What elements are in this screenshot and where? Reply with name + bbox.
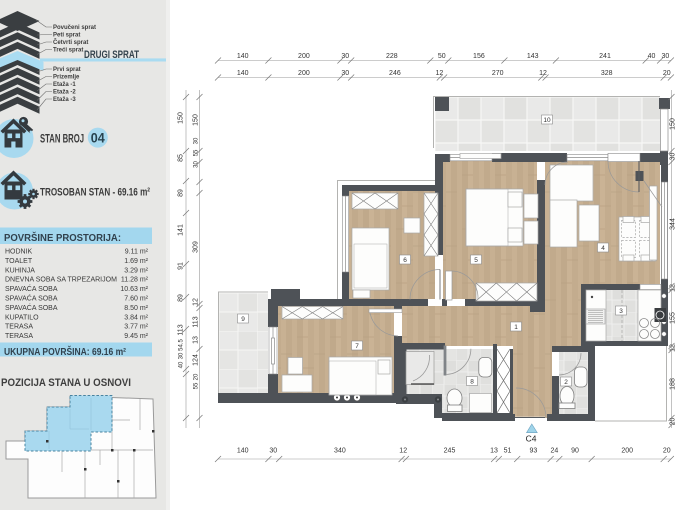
svg-text:55: 55 — [194, 382, 200, 389]
svg-text:3.29 m²: 3.29 m² — [124, 267, 148, 274]
svg-text:140: 140 — [237, 448, 249, 455]
svg-text:10: 10 — [543, 117, 551, 124]
svg-text:Etaža -3: Etaža -3 — [53, 97, 76, 103]
svg-text:89: 89 — [178, 189, 185, 197]
svg-text:270: 270 — [492, 70, 504, 77]
svg-text:DNEVNA SOBA SA TRPEZARIJOM: DNEVNA SOBA SA TRPEZARIJOM — [5, 277, 117, 284]
svg-text:POZICIJA STANA U OSNOVI: POZICIJA STANA U OSNOVI — [1, 377, 131, 389]
svg-text:113: 113 — [193, 316, 200, 327]
svg-text:340: 340 — [334, 448, 346, 455]
svg-text:200: 200 — [621, 448, 633, 455]
svg-text:HODNIK: HODNIK — [5, 249, 33, 256]
svg-text:50: 50 — [438, 53, 446, 60]
svg-text:1: 1 — [514, 324, 518, 331]
svg-text:140: 140 — [237, 53, 249, 60]
svg-text:5: 5 — [474, 257, 478, 264]
svg-text:150: 150 — [178, 112, 185, 124]
svg-text:TERASA: TERASA — [5, 324, 33, 331]
svg-text:12: 12 — [399, 448, 407, 455]
svg-text:3: 3 — [619, 308, 623, 315]
svg-text:155: 155 — [670, 312, 677, 324]
svg-text:Etaža -1: Etaža -1 — [53, 82, 76, 88]
svg-text:93: 93 — [530, 448, 538, 455]
svg-text:KUHINJA: KUHINJA — [5, 267, 35, 274]
svg-text:150: 150 — [670, 118, 677, 130]
svg-text:TROSOBAN STAN - 69.16 m²: TROSOBAN STAN - 69.16 m² — [40, 187, 150, 199]
svg-text:11.28 m²: 11.28 m² — [121, 277, 149, 284]
svg-text:85: 85 — [178, 154, 185, 162]
svg-text:13: 13 — [490, 448, 498, 455]
svg-text:20: 20 — [663, 70, 671, 77]
svg-text:246: 246 — [389, 70, 401, 77]
svg-text:228: 228 — [386, 53, 398, 60]
svg-text:3.77 m²: 3.77 m² — [124, 324, 148, 331]
svg-text:200: 200 — [298, 70, 310, 77]
svg-text:7.60 m²: 7.60 m² — [124, 296, 148, 303]
svg-text:51: 51 — [504, 448, 512, 455]
svg-text:124: 124 — [193, 354, 200, 366]
svg-text:241: 241 — [599, 53, 611, 60]
svg-text:143: 143 — [527, 53, 539, 60]
svg-text:6: 6 — [403, 257, 407, 264]
svg-text:91: 91 — [178, 262, 185, 270]
svg-text:9: 9 — [241, 316, 245, 323]
svg-text:8.50 m²: 8.50 m² — [124, 305, 148, 312]
svg-text:30: 30 — [341, 70, 349, 77]
svg-text:20: 20 — [663, 448, 671, 455]
svg-text:4: 4 — [601, 245, 605, 252]
svg-text:3.84 m²: 3.84 m² — [124, 314, 148, 321]
svg-text:04: 04 — [91, 131, 105, 146]
svg-text:SPAVAĆA SOBA: SPAVAĆA SOBA — [5, 294, 58, 303]
svg-text:90: 90 — [571, 448, 579, 455]
svg-text:24: 24 — [551, 448, 559, 455]
svg-text:9.11 m²: 9.11 m² — [125, 249, 149, 256]
svg-text:40: 40 — [648, 53, 656, 60]
svg-text:30: 30 — [179, 352, 185, 359]
svg-text:30: 30 — [194, 137, 200, 144]
svg-text:30: 30 — [194, 161, 200, 168]
svg-text:POVRŠINE PROSTORIJA:: POVRŠINE PROSTORIJA: — [4, 231, 121, 244]
svg-text:SPAVAĆA SOBA: SPAVAĆA SOBA — [5, 284, 58, 293]
svg-text:7: 7 — [355, 343, 359, 350]
svg-text:141: 141 — [178, 224, 185, 236]
svg-text:20: 20 — [194, 373, 200, 380]
svg-text:200: 200 — [298, 53, 310, 60]
svg-text:344: 344 — [670, 218, 677, 230]
svg-text:SPAVAĆA SOBA: SPAVAĆA SOBA — [5, 303, 58, 312]
svg-text:KUPATILO: KUPATILO — [5, 314, 39, 321]
svg-text:Peti sprat: Peti sprat — [53, 33, 80, 39]
svg-text:2: 2 — [564, 379, 568, 386]
svg-text:9.45 m²: 9.45 m² — [124, 333, 148, 340]
svg-text:Povučeni sprat: Povučeni sprat — [53, 25, 96, 31]
svg-text:UKUPNA POVRŠINA: 69.16 m²: UKUPNA POVRŠINA: 69.16 m² — [4, 345, 126, 358]
svg-text:30: 30 — [341, 53, 349, 60]
svg-text:140: 140 — [237, 70, 249, 77]
svg-text:10.63 m²: 10.63 m² — [120, 286, 148, 293]
svg-text:12: 12 — [436, 70, 444, 77]
svg-text:Treći sprat: Treći sprat — [53, 48, 83, 54]
svg-text:12: 12 — [539, 70, 547, 77]
svg-text:DRUGI SPRAT: DRUGI SPRAT — [84, 49, 139, 61]
svg-text:Četvrti sprat: Četvrti sprat — [53, 39, 88, 46]
svg-text:TERASA: TERASA — [5, 333, 33, 340]
svg-text:8: 8 — [470, 379, 474, 386]
svg-text:55: 55 — [194, 149, 200, 156]
svg-text:30: 30 — [269, 448, 277, 455]
svg-text:328: 328 — [601, 70, 613, 77]
svg-text:TOALET: TOALET — [5, 258, 33, 265]
svg-text:188: 188 — [670, 378, 677, 390]
svg-text:40: 40 — [179, 361, 185, 368]
svg-text:54.5: 54.5 — [179, 339, 185, 351]
svg-text:89: 89 — [178, 294, 185, 302]
svg-text:Prizemlje: Prizemlje — [53, 75, 80, 81]
svg-text:C4: C4 — [526, 434, 537, 444]
svg-text:Prvi sprat: Prvi sprat — [53, 67, 81, 73]
svg-text:Etaža -2: Etaža -2 — [53, 90, 76, 96]
svg-text:113: 113 — [178, 324, 185, 335]
svg-text:1.69 m²: 1.69 m² — [124, 258, 148, 265]
svg-text:309: 309 — [193, 241, 200, 253]
svg-text:30: 30 — [670, 153, 677, 161]
svg-text:156: 156 — [473, 53, 485, 60]
svg-text:150: 150 — [193, 114, 200, 126]
svg-text:13: 13 — [193, 336, 200, 344]
svg-text:STAN BROJ: STAN BROJ — [40, 133, 84, 145]
svg-text:245: 245 — [444, 448, 456, 455]
svg-text:30: 30 — [662, 53, 670, 60]
